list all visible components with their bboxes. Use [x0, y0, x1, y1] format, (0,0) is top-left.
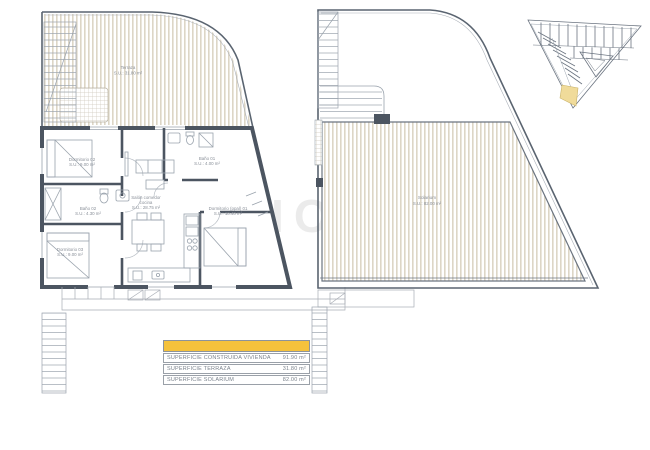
svg-text:S.U.: 31.80 m²: S.U.: 31.80 m²: [114, 71, 143, 76]
surface-summary-table: SUPERFICIE CONSTRUIDA VIVIENDA 91.90 m² …: [163, 340, 310, 386]
exterior-ladder-right: [312, 307, 327, 393]
svg-text:S.U.: 28.75 m²: S.U.: 28.75 m²: [132, 205, 161, 210]
exterior-steps-right: [318, 290, 414, 307]
svg-text:S.U.: 9.00 m²: S.U.: 9.00 m²: [69, 162, 95, 167]
row-value: 82.00 m²: [283, 377, 306, 383]
row-label: SUPERFICIE SOLARIUM: [167, 377, 234, 383]
highlighted-unit: [560, 85, 578, 106]
row-value: 91.90 m²: [283, 355, 306, 361]
row-label: SUPERFICIE CONSTRUIDA VIVIENDA: [167, 355, 271, 361]
table-header-band: [163, 340, 310, 352]
svg-text:S.U.: 10.40 m²: S.U.: 10.40 m²: [214, 211, 243, 216]
row-label: SUPERFICIE TERRAZA: [167, 366, 231, 372]
svg-text:S.U.: 9.00 m²: S.U.: 9.00 m²: [57, 252, 83, 257]
site-plan: [528, 20, 641, 108]
table-row: SUPERFICIE TERRAZA 31.80 m²: [163, 364, 310, 374]
exterior-ladder-left: [42, 313, 66, 393]
svg-text:S.U.: 4.30 m²: S.U.: 4.30 m²: [75, 211, 101, 216]
solarium-hatch: [322, 122, 585, 281]
exterior-steps-left: [62, 287, 345, 310]
row-value: 31.80 m²: [283, 366, 306, 372]
right-solarium-plan: Solarium S.U.: 82.00 m²: [312, 10, 598, 393]
table-row: SUPERFICIE CONSTRUIDA VIVIENDA 91.90 m²: [163, 353, 310, 363]
table-row: SUPERFICIE SOLARIUM 82.00 m²: [163, 375, 310, 385]
stairs-left-plan: [44, 22, 76, 122]
chimney-block: [374, 114, 390, 124]
floorplan-sheet: HOMES: [0, 0, 650, 450]
label-terraza: Terraza: [121, 65, 136, 70]
svg-text:S.U.: 82.00 m²: S.U.: 82.00 m²: [413, 201, 442, 206]
svg-text:S.U.: 4.00 m²: S.U.: 4.00 m²: [194, 161, 220, 166]
label-solarium: Solarium: [418, 195, 436, 200]
